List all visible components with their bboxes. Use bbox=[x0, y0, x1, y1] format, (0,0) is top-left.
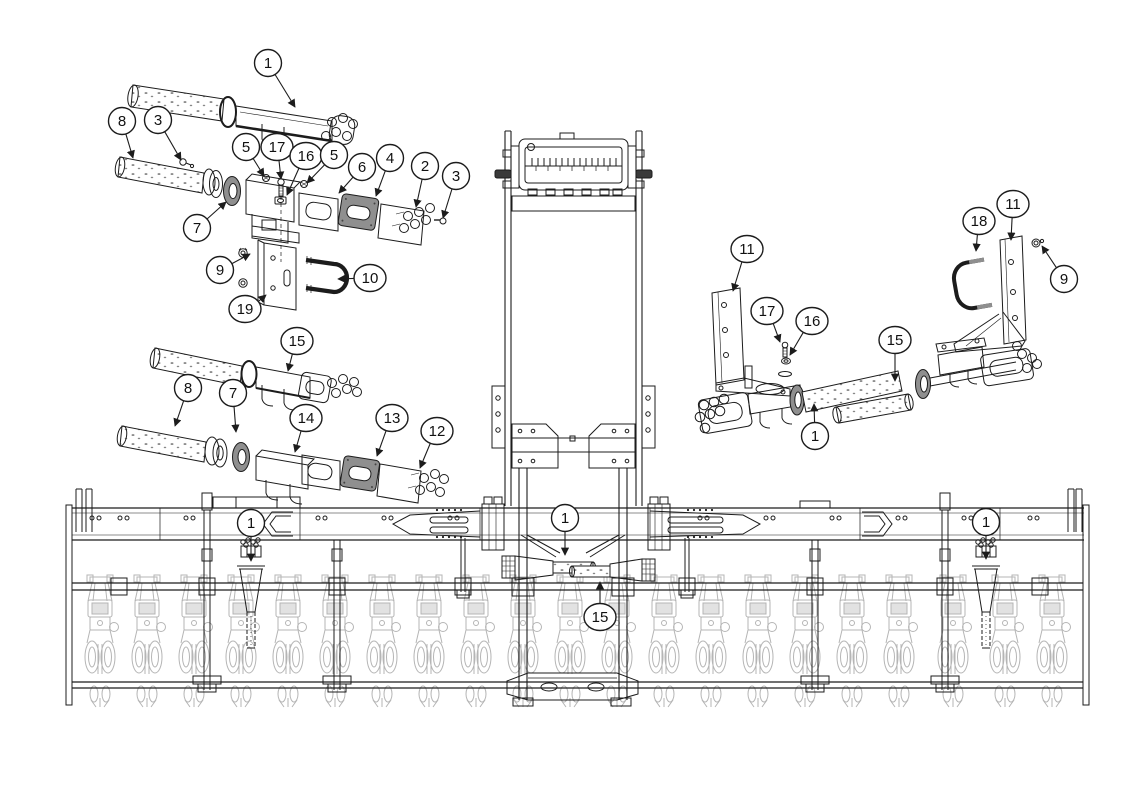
manifold-12 bbox=[377, 464, 449, 503]
washer bbox=[779, 372, 792, 377]
callout-number: 15 bbox=[592, 609, 609, 626]
callout-number: 1 bbox=[982, 514, 990, 531]
callout-number: 11 bbox=[739, 241, 755, 258]
callout-11: 11 bbox=[997, 191, 1029, 241]
ring-7 bbox=[224, 177, 241, 206]
callout-number: 3 bbox=[154, 112, 162, 129]
parts-diagram-page: 1835171656423791019158714131211171618119… bbox=[0, 0, 1123, 794]
bolt-5b bbox=[301, 181, 308, 188]
callout-7: 7 bbox=[220, 380, 247, 433]
callout-15: 15 bbox=[281, 328, 313, 372]
nut-16 bbox=[275, 197, 286, 204]
bracket-11-right bbox=[936, 236, 1026, 352]
nut-16-right bbox=[782, 358, 791, 364]
channel-14 bbox=[256, 450, 340, 504]
gasket-4 bbox=[338, 193, 380, 230]
callout-number: 19 bbox=[237, 301, 254, 318]
callout-number: 15 bbox=[887, 332, 904, 349]
callout-number: 16 bbox=[298, 148, 315, 165]
callout-11: 11 bbox=[731, 236, 763, 292]
chevron-detail bbox=[862, 512, 892, 536]
callout-3: 3 bbox=[145, 107, 182, 161]
exploded-parts-diagram: 1835171656423791019158714131211171618119… bbox=[0, 0, 1123, 794]
tube-8-lower bbox=[116, 425, 227, 467]
callout-number: 7 bbox=[229, 385, 237, 402]
callout-number: 1 bbox=[811, 428, 819, 445]
callout-number: 1 bbox=[264, 55, 272, 72]
callout-number: 7 bbox=[193, 220, 201, 237]
callout-number: 14 bbox=[298, 410, 315, 427]
callout-number: 1 bbox=[561, 510, 569, 527]
top-bracket bbox=[800, 501, 830, 508]
callout-number: 15 bbox=[289, 333, 306, 350]
callout-1: 1 bbox=[973, 509, 1000, 560]
callout-number: 17 bbox=[759, 303, 776, 320]
callout-19: 19 bbox=[229, 295, 266, 323]
callout-number: 8 bbox=[184, 380, 192, 397]
callout-number: 3 bbox=[452, 168, 460, 185]
top-bracket bbox=[213, 497, 300, 508]
bolt-17 bbox=[278, 179, 284, 196]
callout-14: 14 bbox=[290, 405, 322, 453]
manifold-2 bbox=[378, 204, 435, 246]
callout-number: 11 bbox=[1005, 196, 1021, 213]
callout-8: 8 bbox=[109, 108, 136, 159]
tower-crossband bbox=[512, 196, 635, 211]
chevron-detail bbox=[263, 512, 293, 536]
manifold-left-end bbox=[698, 392, 753, 434]
callout-number: 13 bbox=[384, 410, 401, 427]
callout-number: 4 bbox=[386, 150, 394, 167]
assembly-right bbox=[695, 236, 1043, 434]
bolt-3b bbox=[434, 218, 446, 224]
wing-splice-right bbox=[650, 511, 760, 537]
u-bolt-18 bbox=[951, 260, 991, 311]
callout-number: 12 bbox=[429, 423, 446, 440]
callout-layer: 1835171656423791019158714131211171618119… bbox=[109, 50, 1078, 631]
row-units-layer bbox=[85, 575, 1071, 707]
callout-number: 2 bbox=[421, 158, 429, 175]
latch-handle bbox=[636, 170, 652, 178]
callout-2: 2 bbox=[412, 153, 439, 208]
callout-number: 9 bbox=[1060, 271, 1068, 288]
callout-number: 6 bbox=[358, 159, 366, 176]
callout-number: 16 bbox=[804, 313, 821, 330]
callout-number: 1 bbox=[247, 515, 255, 532]
callout-7: 7 bbox=[184, 202, 227, 242]
callout-12: 12 bbox=[420, 418, 453, 469]
callout-number: 5 bbox=[242, 139, 250, 156]
collar-ring bbox=[242, 361, 257, 387]
callout-number: 10 bbox=[362, 270, 379, 287]
callout-1: 1 bbox=[255, 50, 296, 108]
manifold-stubs bbox=[322, 114, 358, 141]
center-frame-tower bbox=[482, 131, 670, 706]
bolt-3 bbox=[180, 159, 194, 168]
left-end-plate bbox=[66, 505, 72, 705]
u-bolt-10 bbox=[306, 256, 347, 293]
callout-15: 15 bbox=[879, 327, 911, 382]
nut-9-right bbox=[1032, 239, 1044, 247]
callout-3: 3 bbox=[443, 163, 470, 219]
callout-18: 18 bbox=[963, 208, 995, 252]
callout-16: 16 bbox=[790, 308, 828, 356]
callout-number: 8 bbox=[118, 113, 126, 130]
hinge-casting bbox=[482, 504, 504, 550]
callout-number: 5 bbox=[330, 147, 338, 164]
callout-9: 9 bbox=[1042, 246, 1078, 293]
gasket-13 bbox=[340, 455, 380, 491]
callout-17: 17 bbox=[751, 298, 783, 343]
tube-8 bbox=[114, 156, 223, 197]
plate-6 bbox=[299, 193, 338, 231]
callout-number: 17 bbox=[269, 139, 286, 156]
callout-13: 13 bbox=[376, 405, 408, 457]
bolt-17-right bbox=[782, 342, 788, 357]
latch-handle bbox=[495, 170, 511, 178]
nut-9b bbox=[239, 279, 247, 287]
callout-number: 9 bbox=[216, 262, 224, 279]
callout-number: 18 bbox=[971, 213, 988, 230]
callout-8: 8 bbox=[175, 375, 202, 427]
ring-7-lower bbox=[233, 443, 250, 472]
callout-4: 4 bbox=[376, 145, 404, 197]
callout-17: 17 bbox=[261, 134, 293, 180]
callout-1: 1 bbox=[552, 505, 579, 556]
callout-5: 5 bbox=[233, 134, 265, 177]
seed-distribution-box bbox=[495, 133, 652, 195]
wing-splice-left bbox=[393, 511, 480, 537]
